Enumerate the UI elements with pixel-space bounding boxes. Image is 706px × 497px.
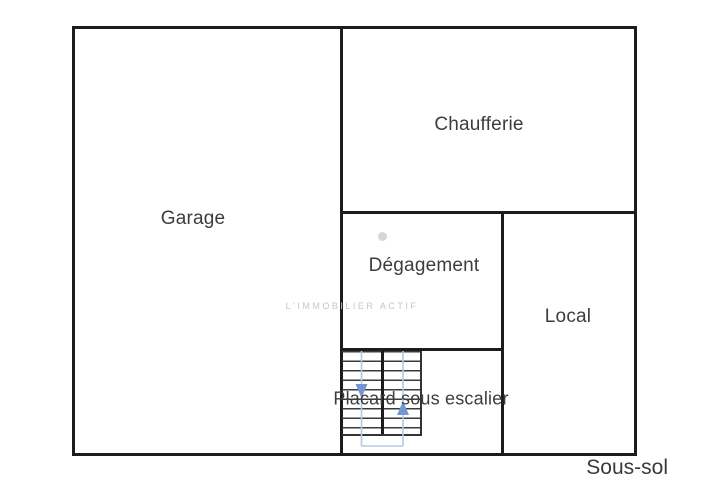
room-label-garage: Garage <box>161 208 226 230</box>
wall-local-divider <box>501 211 504 456</box>
floor-label: Sous-sol <box>586 456 668 480</box>
room-label-chaufferie: Chaufferie <box>434 114 523 136</box>
room-label-local: Local <box>545 306 591 328</box>
room-label-degagement: Dégagement <box>369 255 480 277</box>
watermark-text: L'IMMOBILIER ACTIF <box>286 301 419 311</box>
wall-chaufferie-bottom <box>340 211 637 214</box>
room-label-placard-sous-escalier: Placard sous escalier <box>333 389 508 410</box>
floor-plan: L'IMMOBILIER ACTIF Garage Chaufferie Dég… <box>0 0 706 497</box>
watermark-dot <box>378 232 387 241</box>
